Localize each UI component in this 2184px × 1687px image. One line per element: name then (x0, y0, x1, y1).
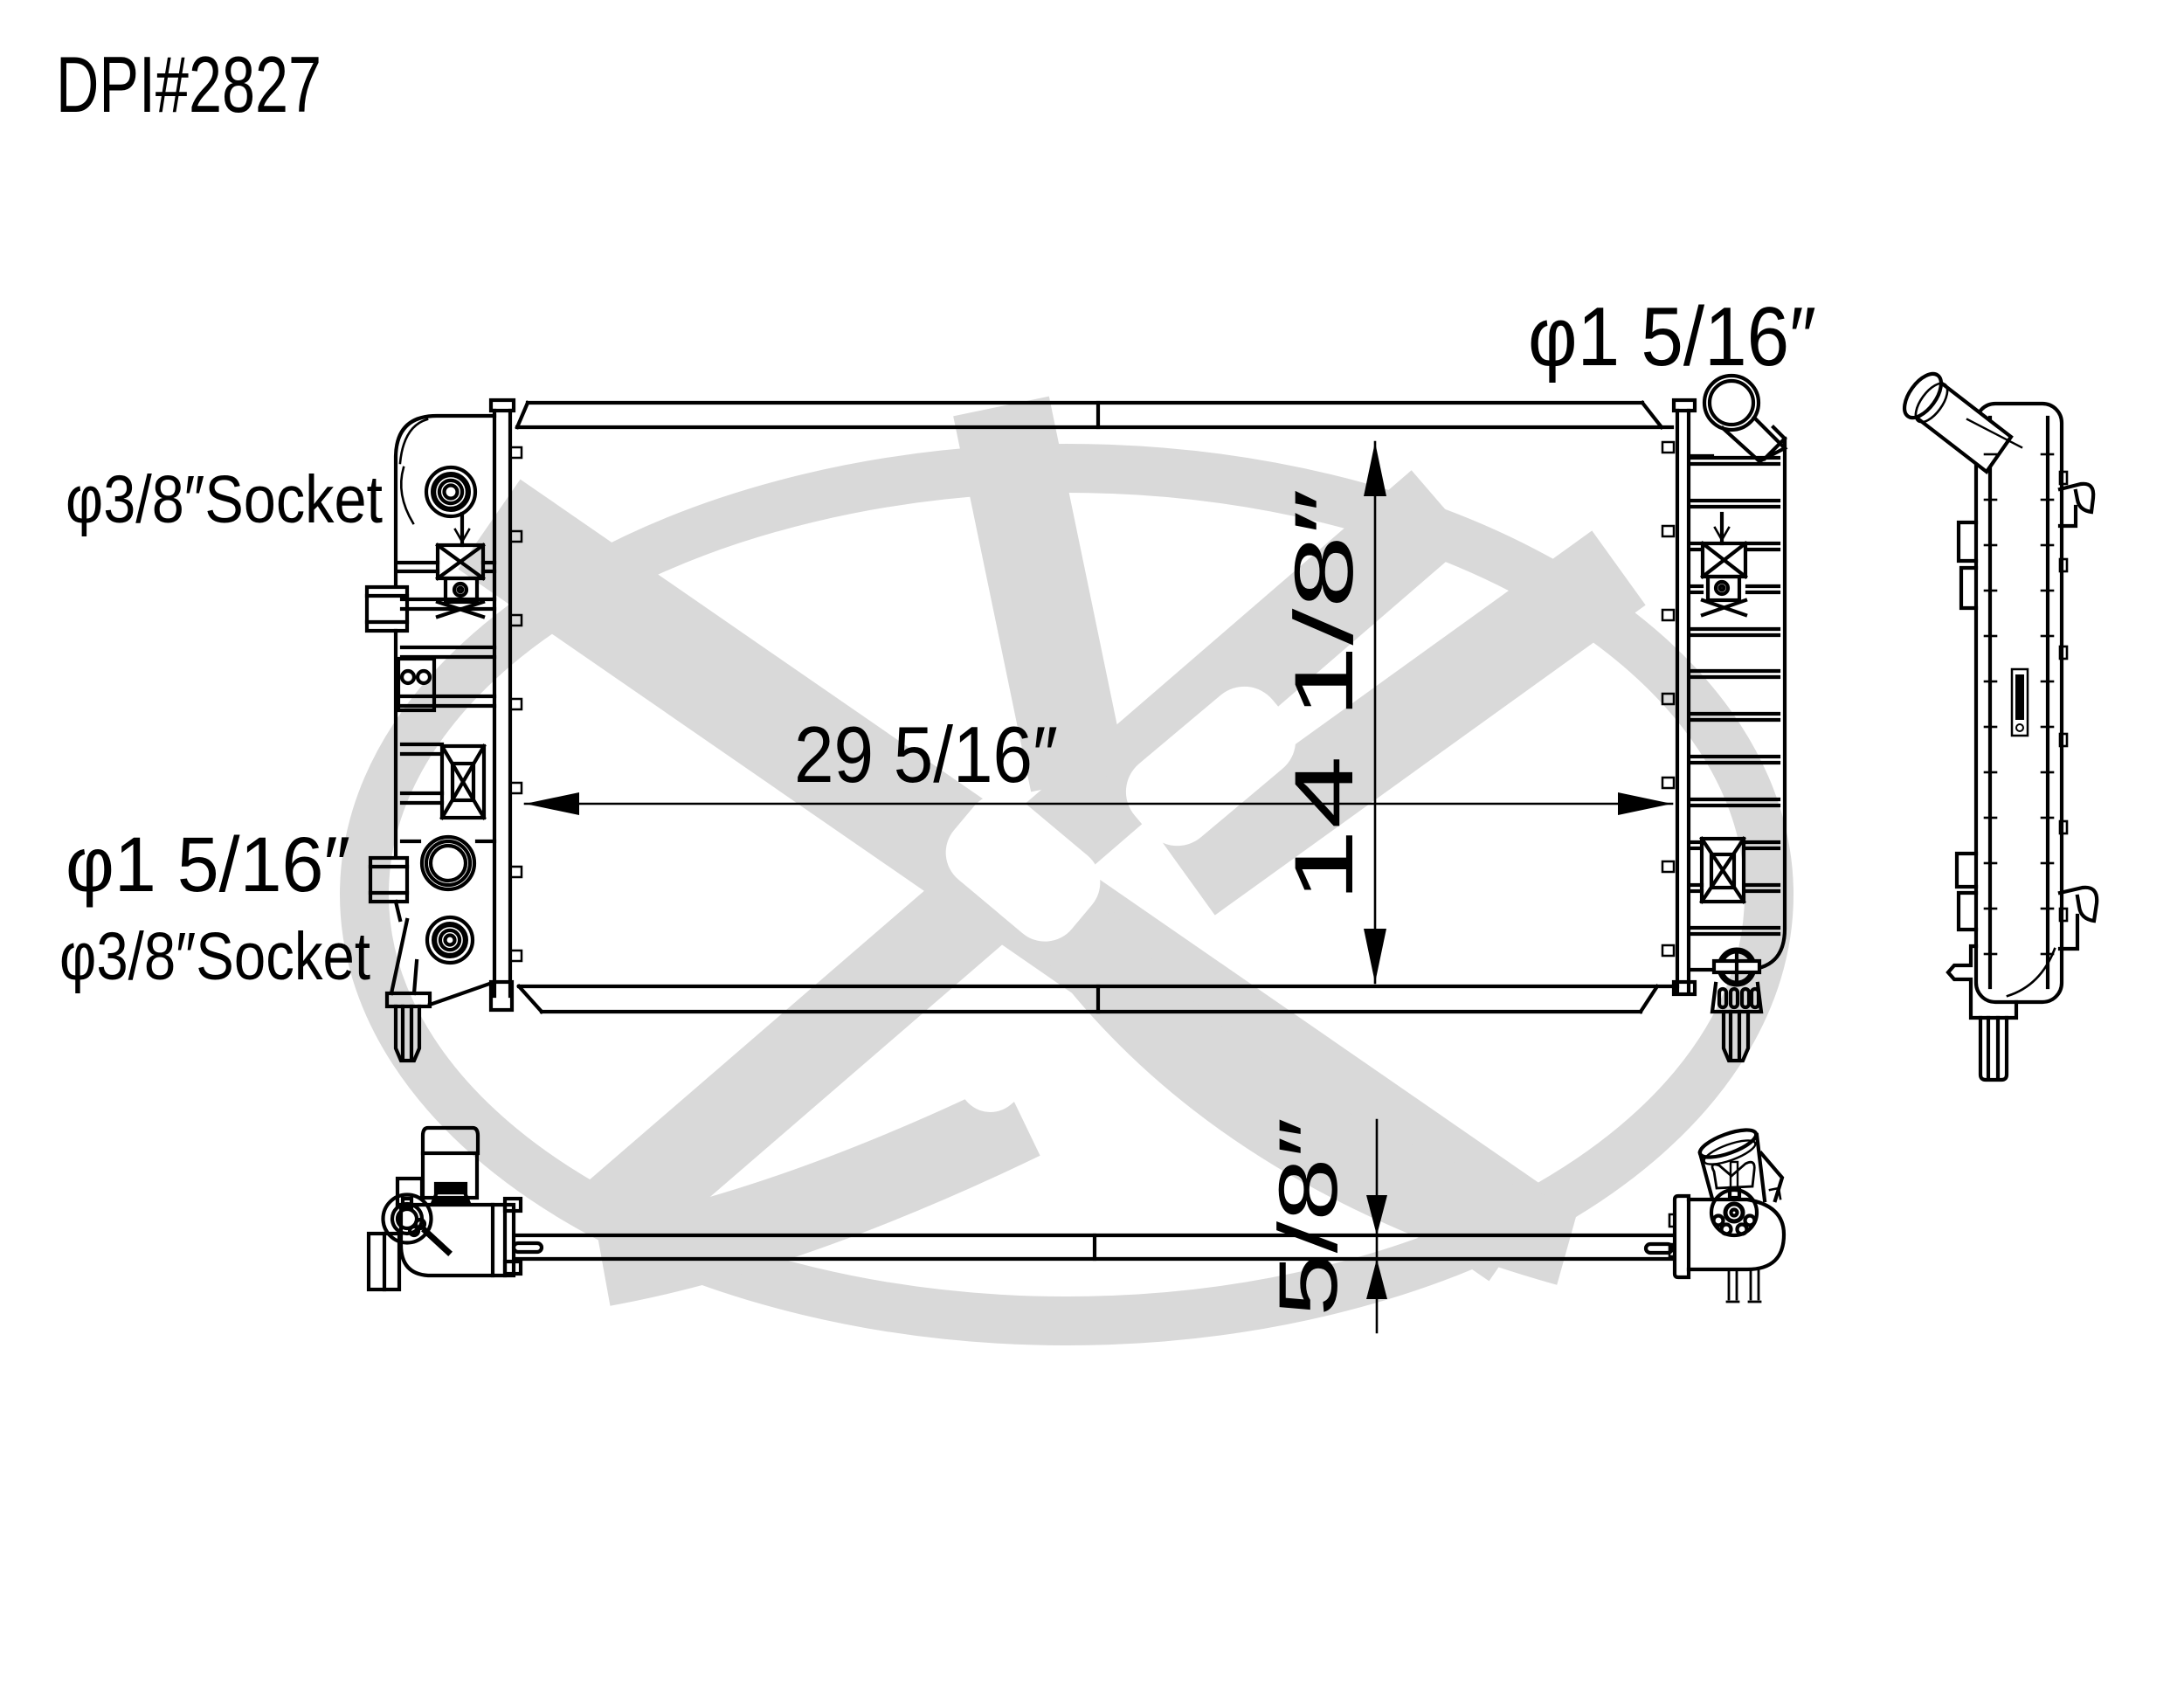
svg-text:φ3/8″Socket: φ3/8″Socket (66, 462, 383, 537)
svg-text:DPI#2827: DPI#2827 (56, 41, 321, 129)
svg-text:φ3/8″Socket: φ3/8″Socket (59, 919, 370, 994)
svg-text:14 1/8″: 14 1/8″ (1278, 488, 1371, 902)
svg-text:φ1 5/16″: φ1 5/16″ (66, 820, 350, 908)
svg-text:29 5/16″: 29 5/16″ (794, 711, 1058, 799)
svg-text:φ1 5/16″: φ1 5/16″ (1528, 290, 1816, 384)
svg-text:5/8″: 5/8″ (1262, 1117, 1355, 1317)
